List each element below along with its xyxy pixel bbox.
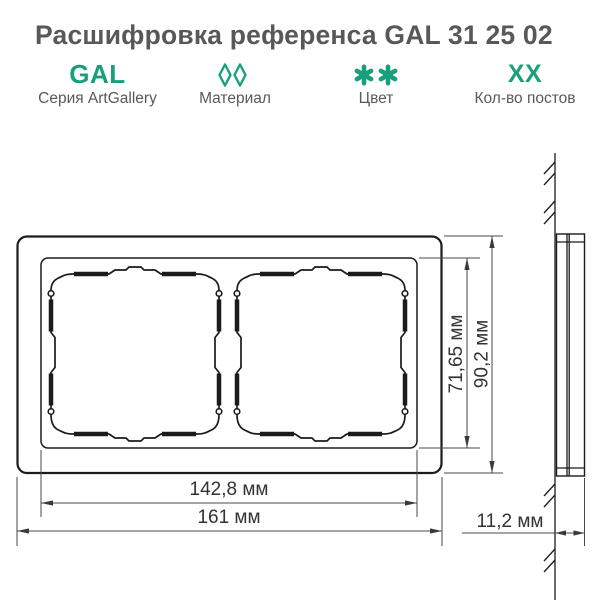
wall-hatch-marks — [544, 162, 555, 572]
dim-inner-width: 142,8 мм — [190, 479, 269, 500]
page: Расшифровка референса GAL 31 25 02 GAL С… — [0, 0, 600, 600]
dim-inner-height: 71,65 мм — [446, 315, 467, 394]
dim-outer-height: 90,2 мм — [472, 320, 493, 388]
dim-outer-width: 161 мм — [197, 507, 260, 528]
front-view — [18, 237, 442, 474]
dim-depth: 11,2 мм — [477, 511, 544, 532]
technical-drawing: 71,65 мм 90,2 мм 142,8 мм 161 мм 11,2 мм — [0, 0, 600, 600]
frame-profile — [557, 234, 585, 476]
